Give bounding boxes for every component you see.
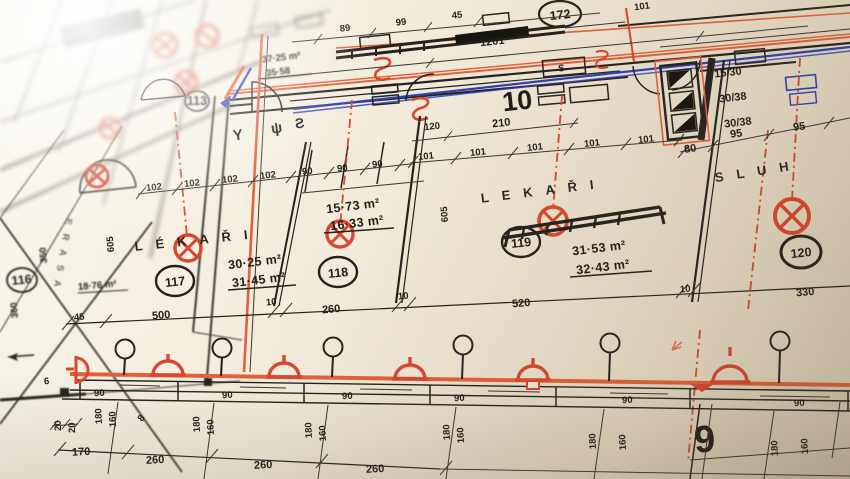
- dim-360: 360: [9, 302, 21, 319]
- window-dim-90: 90: [342, 391, 353, 403]
- dome-fixture-side-icon: [66, 356, 88, 384]
- room-tag-116-label: 116: [11, 272, 33, 288]
- dim-350: 350: [38, 247, 50, 264]
- window-dim-90: 90: [622, 395, 633, 407]
- dim-210: 210: [492, 116, 512, 130]
- legend-row1: 15/30: [713, 65, 742, 80]
- lamp-symbols: [175, 199, 809, 261]
- room-label-lekari-right: LEKAŘI: [480, 175, 607, 205]
- dim-90: 90: [372, 159, 384, 171]
- dim-102: 102: [222, 173, 239, 186]
- plumbing-mark: Y: [232, 126, 244, 144]
- dim-row-210: 210 120: [412, 116, 578, 141]
- valve-wheel-icon: [153, 33, 177, 57]
- legend-row2: 30/38: [718, 90, 747, 105]
- dim-120: 120: [424, 121, 441, 134]
- pier-block: [60, 388, 69, 397]
- dim-260: 260: [254, 459, 273, 472]
- dome-fixture-icon: [266, 355, 302, 377]
- dim-102: 102: [146, 181, 163, 194]
- dim-101: 101: [584, 137, 602, 150]
- plumbing-mark: ψ: [270, 119, 284, 137]
- room-tag-120-label: 120: [790, 245, 812, 261]
- room-tag-119-label: 119: [510, 235, 532, 251]
- dim-95: 95: [729, 127, 743, 141]
- terasa-label: ERASA: [49, 217, 73, 296]
- window-dim-90: 90: [454, 393, 465, 405]
- dim-180: 180: [769, 440, 781, 456]
- dim-10: 10: [680, 284, 691, 296]
- room-label-sluh: SLUH: [714, 157, 803, 185]
- dim-180: 180: [303, 422, 315, 438]
- dim-45-left: 45: [73, 312, 85, 324]
- room-tag-118-label: 118: [327, 265, 349, 281]
- dome-fixture-icon: [150, 354, 186, 375]
- window-dim-90: 90: [794, 398, 805, 410]
- blueprint-photo: { "grid": { "axis_top": "10", "axis_bott…: [0, 0, 850, 479]
- dim-160: 160: [205, 419, 217, 435]
- dim-10: 10: [398, 291, 409, 303]
- plumbing-mark: Ƨ: [294, 114, 305, 131]
- grid-axis-10: 10: [501, 84, 534, 117]
- dim-101: 101: [418, 150, 436, 163]
- dim-520: 520: [512, 297, 531, 311]
- window-dim-90: 90: [222, 390, 233, 402]
- dim-80: 80: [683, 142, 697, 156]
- dim-90: 90: [302, 166, 314, 178]
- window-dim-90: 90: [94, 388, 105, 400]
- left-arrow-icon: [8, 353, 34, 361]
- room-tag-117-label: 117: [164, 274, 186, 290]
- dim-330: 330: [796, 286, 815, 300]
- dim-101: 101: [633, 0, 651, 13]
- dim-260: 260: [146, 454, 165, 467]
- dim-605-right: 605: [439, 205, 451, 222]
- dim-90: 90: [337, 163, 349, 175]
- dim-160: 160: [317, 425, 329, 441]
- room-tag-113-label: 113: [187, 94, 207, 108]
- dim-170: 170: [72, 446, 91, 459]
- pen-arrow-mark: [672, 341, 682, 350]
- dim-102: 102: [260, 169, 277, 182]
- dome-fixture-icon: [392, 357, 428, 379]
- dim-6: 6: [44, 376, 50, 387]
- dim-99: 99: [395, 16, 407, 28]
- dome-fixture-icon: [515, 358, 551, 389]
- dim-160: 160: [455, 427, 467, 443]
- dim-101: 101: [470, 146, 488, 159]
- dim-45: 45: [451, 9, 464, 21]
- dim-160: 160: [799, 438, 811, 454]
- dim-260: 260: [366, 463, 385, 476]
- dim-160: 160: [617, 434, 629, 450]
- dim-180: 180: [441, 424, 453, 440]
- dim-180: 180: [93, 408, 105, 424]
- circle-x-lamp-icon: [775, 199, 809, 233]
- dim-10: 10: [266, 297, 277, 309]
- dim-260-main: 260: [322, 303, 341, 317]
- dim-180: 180: [191, 416, 203, 432]
- exterior-wall: 90 90 90 90 90 90: [62, 374, 850, 411]
- dim-102: 102: [184, 177, 201, 190]
- dim-chain-main: 45 500 10 260 10 520 10 330: [62, 283, 850, 330]
- dim-89: 89: [339, 22, 351, 34]
- dim-500: 500: [152, 309, 171, 323]
- valve-wheel-icon: [196, 25, 218, 47]
- dim-1201: 1201: [479, 35, 505, 49]
- dome-fixture-icon: [710, 347, 750, 382]
- dim-180: 180: [587, 433, 599, 449]
- area-119a: 31·53 m²: [571, 238, 626, 258]
- s-box-label: S: [558, 63, 565, 75]
- room-label-lekari-left: LÉKAŘI: [134, 226, 261, 254]
- dim-101: 101: [527, 141, 545, 154]
- dim-95: 95: [792, 120, 806, 134]
- dim-101: 101: [638, 133, 656, 146]
- area-117a: 30·25 m²: [227, 252, 282, 272]
- dim-160: 160: [107, 411, 119, 427]
- dim-605-left: 605: [105, 235, 117, 252]
- room-tag-172-label: 172: [549, 7, 571, 23]
- dim-row-102-90: 102 102 102 102 90 90 90: [136, 159, 410, 199]
- dim-row-101: 101 101 101 101 101: [408, 133, 684, 168]
